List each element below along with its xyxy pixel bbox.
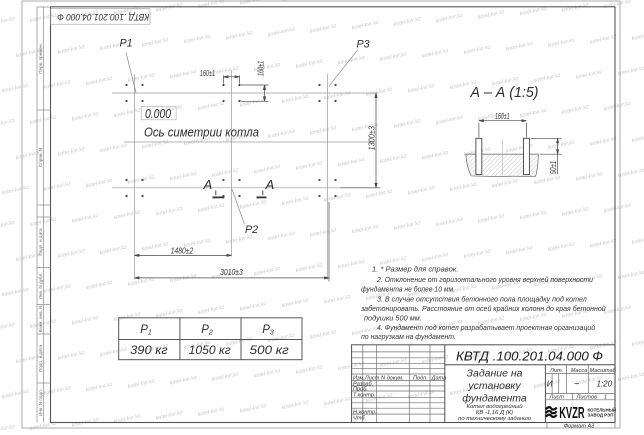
svg-text:И: И [547,380,553,389]
svg-text:Чтб.: Чтб. [353,416,366,422]
svg-text:1: 1 [604,395,607,401]
svg-text:Инв. N подл.: Инв. N подл. [38,389,43,416]
svg-text:Н.контр.: Н.контр. [353,409,377,415]
svg-text:Задание на: Задание на [467,368,523,380]
svg-text:1. * Размер для справок.: 1. * Размер для справок. [372,265,459,274]
svg-text:500 кг: 500 кг [250,345,289,357]
svg-text:N докум.: N докум. [381,375,404,381]
svg-text:Инв. N дубл.: Инв. N дубл. [38,273,43,300]
svg-text:установку: установку [467,380,521,392]
svg-text:подушки 500 мм.: подушки 500 мм. [364,314,422,323]
svg-text:160±1: 160±1 [256,61,265,76]
svg-text:Взам. инв. N: Взам. инв. N [38,306,43,333]
svg-text:Р3: Р3 [357,38,370,50]
svg-text:2. Отклонение от горизонтально: 2. Отклонение от горизонтального уровня … [376,275,594,284]
svg-text:фундамента: фундамента [462,392,527,404]
svg-text:Р2: Р2 [245,224,258,236]
svg-text:А – А (1:5): А – А (1:5) [470,84,539,101]
svg-text:1050 кг: 1050 кг [189,345,231,357]
svg-text:160±1: 160±1 [200,69,215,78]
svg-text:Масса: Масса [571,368,588,374]
svg-text:Масштаб: Масштаб [590,368,617,374]
svg-text:50±1: 50±1 [549,161,558,175]
svg-text:KVZR: KVZR [559,405,585,422]
svg-text:3010±3: 3010±3 [220,268,243,277]
svg-text:390 кг: 390 кг [130,345,168,357]
svg-text:Р1: Р1 [120,38,133,50]
svg-text:по нагрузкам на фундамент.: по нагрузкам на фундамент. [361,332,456,341]
svg-text:Лист: Лист [549,395,565,401]
svg-text:1300±3: 1300±3 [368,125,377,150]
svg-text:Формат А3: Формат А3 [564,424,595,430]
svg-text:Подп. и дата: Подп. и дата [38,345,43,373]
svg-text:забетонировать. Расстояние от: забетонировать. Расстояние от осей крайн… [360,304,606,313]
svg-text:Котел водогрейный: Котел водогрейный [466,403,523,410]
svg-text:4. Фундамент под котел разраба: 4. Фундамент под котел разрабатывает про… [377,323,596,332]
svg-text:160±1: 160±1 [495,112,510,121]
svg-text:Т.контр.: Т.контр. [353,393,376,399]
svg-text:Перв. примен.: Перв. примен. [38,43,43,74]
svg-text:Ось симетрии котла: Ось симетрии котла [144,125,259,140]
svg-text:по техническому заданию: по техническому заданию [458,416,531,422]
svg-text:Листов: Листов [576,395,597,401]
svg-text:КВТД .100.201.04.000 Ф: КВТД .100.201.04.000 Ф [57,12,149,22]
svg-text:Лит.: Лит. [549,368,563,374]
svg-text:Дата: Дата [431,375,447,381]
svg-text:1480±2: 1480±2 [171,246,194,255]
svg-text:0.000: 0.000 [145,107,171,121]
svg-text:А: А [203,177,213,192]
svg-text:КВТД .100.201.04.000 Ф: КВТД .100.201.04.000 Ф [456,349,603,364]
svg-text:ЗАВОД РЭП: ЗАВОД РЭП [588,413,614,418]
svg-text:фундамента не более 10 мм.: фундамента не более 10 мм. [361,284,455,293]
svg-text:1:20: 1:20 [597,380,613,389]
svg-text:Подп. и дата: Подп. и дата [38,228,43,256]
svg-text:А: А [265,177,275,192]
svg-text:Подп.: Подп. [413,375,428,381]
svg-text:–: – [574,379,580,388]
svg-text:Справ. N: Справ. N [38,148,43,167]
svg-text:3. В случае отсутствия бетонно: 3. В случае отсутствия бетонного пола пл… [377,294,587,303]
